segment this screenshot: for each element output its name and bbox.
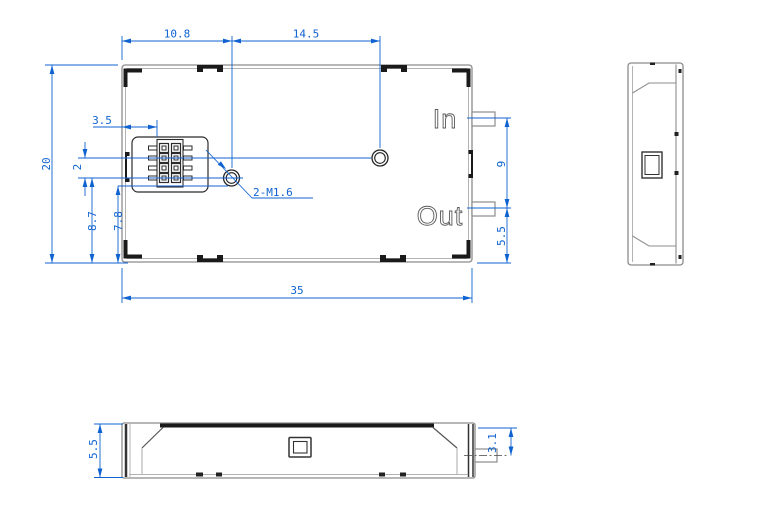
- arrowhead: [83, 149, 88, 158]
- arrowhead: [116, 254, 121, 263]
- arrowhead: [371, 39, 380, 44]
- arrowhead: [50, 65, 55, 74]
- notch: [650, 63, 655, 66]
- arrowhead: [505, 254, 510, 263]
- label-out: Out: [417, 201, 464, 231]
- arrowhead: [505, 208, 510, 217]
- arrowhead: [509, 447, 514, 456]
- connector-housing: [132, 137, 208, 192]
- arrowhead: [50, 254, 55, 263]
- dim-text-20: 20: [40, 157, 53, 170]
- drawing-canvas: In Out: [0, 0, 775, 508]
- arrowhead: [505, 199, 510, 208]
- dim-text-35: 35: [290, 284, 303, 297]
- notch: [675, 171, 679, 175]
- dim-text-7-8: 7.8: [112, 211, 125, 231]
- dim-text-2: 2: [71, 164, 84, 171]
- tick: [400, 473, 406, 477]
- arrowhead: [83, 178, 88, 187]
- mounting-hole-right: [372, 150, 388, 166]
- arrowhead: [98, 469, 103, 478]
- label-in: In: [433, 104, 458, 134]
- arrowhead: [116, 186, 121, 195]
- bottom-top-face-edge: [160, 424, 434, 428]
- dim-text-10-8: 10.8: [164, 28, 191, 41]
- arrowhead: [90, 254, 95, 263]
- dim-text-3-5: 3.5: [92, 114, 112, 127]
- arrowhead: [122, 296, 131, 301]
- arrowhead: [232, 39, 241, 44]
- tick: [379, 473, 385, 477]
- dim-text-3-1: 3.1: [486, 433, 499, 453]
- port-pin-in: [472, 112, 495, 126]
- notch: [675, 132, 679, 136]
- notch: [679, 69, 682, 73]
- tick: [216, 473, 222, 477]
- engineering-drawing-sheet: In Out: [0, 0, 775, 508]
- hole-callout-text: 2-M1.6: [253, 186, 293, 199]
- arrowhead: [98, 424, 103, 433]
- dim-text-5-5: 5.5: [495, 226, 508, 246]
- dim-text-9: 9: [495, 161, 508, 168]
- port-pin-out: [472, 202, 495, 216]
- dim-text-8-7: 8.7: [86, 211, 99, 231]
- front-view: In Out: [122, 65, 495, 262]
- bottom-view: [122, 423, 508, 478]
- bottom-window-outer: [289, 438, 311, 458]
- arrowhead: [90, 178, 95, 187]
- dim-text-5-5-bottom: 5.5: [87, 439, 100, 459]
- arrowhead: [122, 39, 131, 44]
- dim-text-14-5: 14.5: [293, 28, 320, 41]
- arrowhead: [505, 118, 510, 127]
- side-view: [628, 63, 683, 266]
- tick: [196, 473, 203, 477]
- arrowhead: [463, 296, 472, 301]
- arrowhead: [223, 39, 232, 44]
- arrowhead: [509, 428, 514, 437]
- notch: [679, 255, 682, 259]
- notch: [650, 263, 655, 266]
